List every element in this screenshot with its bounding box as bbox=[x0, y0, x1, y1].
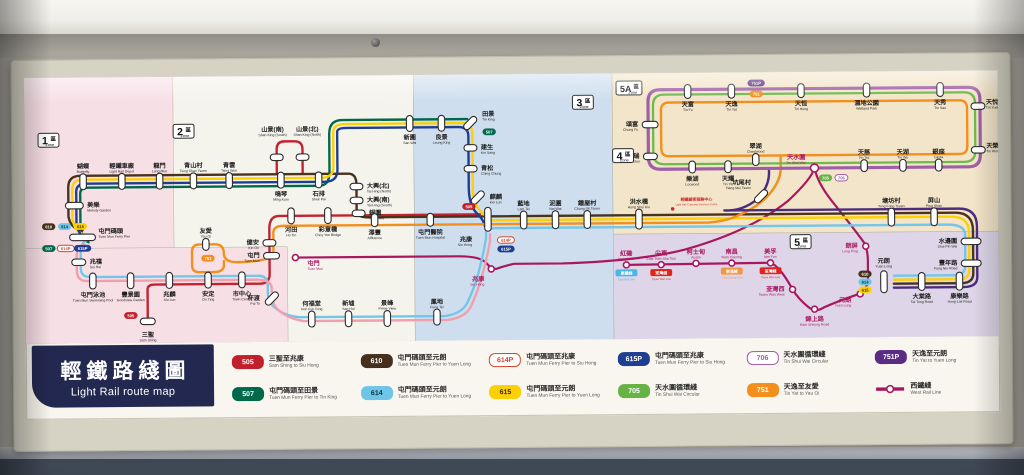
legend-en-615: Tuen Mun Ferry Pier to Yuen Long bbox=[526, 393, 599, 399]
station-tin-tsz bbox=[861, 160, 868, 172]
legend-band: 輕鐵路綫圖 Light Rail route map 505三聖至兆康Sam S… bbox=[26, 337, 1001, 415]
route-badge-507-label: 507 bbox=[45, 246, 53, 251]
station-wetland-park bbox=[863, 83, 870, 97]
legend-en-wrl: West Rail Line bbox=[910, 390, 941, 396]
station-tin-sau-label-en: Tin Sau bbox=[934, 106, 946, 110]
station-affluence-label-en: Affluence bbox=[368, 236, 383, 240]
legend-en-610: Tuen Mun Ferry Pier to Yuen Long bbox=[398, 362, 471, 368]
legend-text-614p: 屯門碼頭至兆康Tuen Mun Ferry Pier to Siu Hong bbox=[526, 353, 596, 367]
route-badge-615P-label: 615P bbox=[501, 247, 511, 252]
legend-text-wrl: 西鐵綫West Rail Line bbox=[910, 382, 941, 396]
legend-badge-505: 505 bbox=[232, 355, 264, 369]
legend-text-615p: 屯門碼頭至兆康Tuen Mun Ferry Pier to Siu Hong bbox=[655, 352, 725, 366]
station-hang-mei-tsuen-label-en: Hang Mei Tsuen bbox=[726, 186, 751, 190]
station-long-ping-wr bbox=[863, 243, 869, 249]
station-yuen-long bbox=[881, 271, 888, 293]
legend-badge-751p: 751P bbox=[875, 350, 907, 364]
legend-item-614: 614屯門碼頭至元朗Tuen Mun Ferry Pier to Yuen Lo… bbox=[361, 378, 484, 409]
legend-item-614p: 614P屯門碼頭至兆康Tuen Mun Ferry Pier to Siu Ho… bbox=[489, 345, 612, 376]
legend-zh-751: 天逸至友愛 bbox=[784, 383, 820, 391]
station-prime-view-label-en: Prime View bbox=[378, 307, 396, 311]
station-ping-shan-label-en: Ping Shan bbox=[926, 204, 942, 208]
legend-badge-615p: 615P bbox=[618, 352, 650, 366]
station-chung-uk-tsuen bbox=[584, 211, 591, 229]
station-tuen-mun-swimming-pool bbox=[90, 273, 97, 289]
station-tin-heng bbox=[798, 84, 805, 98]
route-badge-507-label: 507 bbox=[486, 129, 494, 134]
station-tuen-mun-hospital bbox=[427, 213, 434, 226]
station-tong-fong-tsuen bbox=[888, 208, 895, 226]
station-fung-tei bbox=[434, 309, 441, 325]
station-east-tsim-sha-tsui-wr bbox=[658, 262, 664, 268]
route-badge-751-label: 751 bbox=[204, 256, 212, 261]
station-tin-sau bbox=[937, 83, 944, 97]
station-prime-view bbox=[384, 310, 391, 326]
station-butterfly-label-en: Butterfly bbox=[77, 170, 90, 174]
legend-en-614: Tuen Mun Ferry Pier to Yuen Long bbox=[398, 394, 471, 400]
station-hoh-fuk-tong-label-en: Hoh Fuk Tong bbox=[301, 307, 323, 311]
station-kei-lun-label-en: Kei Lun bbox=[490, 200, 502, 204]
route-badge-610-label: 610 bbox=[862, 272, 870, 277]
legend-text-751: 天逸至友愛Tin Yat to Yau Oi bbox=[784, 383, 820, 397]
station-mei-foo-wr-label-en: Mei Foo bbox=[764, 255, 777, 259]
route-badge-615P-label: 615P bbox=[78, 246, 88, 251]
service-centre-note-zh: 輕鐵顧客服務中心 bbox=[681, 197, 713, 202]
legend-item-507: 507屯門碼頭至田景Tuen Mun Ferry Pier to Tin Kin… bbox=[232, 379, 355, 410]
station-tin-fu-label-en: Tin Fu bbox=[683, 108, 693, 112]
station-kin-on-label-en: Kin On bbox=[248, 246, 259, 250]
route-badge-615-label: 615 bbox=[77, 224, 85, 229]
station-nam-cheong-wr bbox=[729, 260, 735, 266]
station-ping-shan bbox=[931, 208, 938, 226]
station-goodview-garden-label-en: Goodview Garden bbox=[117, 298, 145, 302]
station-tai-tong-road-label-en: Tai Tong Road bbox=[911, 300, 933, 304]
station-tuen-mun-wr bbox=[292, 255, 298, 261]
zone-label-2-zh: 區 bbox=[186, 126, 192, 134]
station-hung-hom-wr bbox=[623, 262, 629, 268]
zone-label-4-zh: 區 bbox=[625, 150, 631, 158]
legend-badge-614: 614 bbox=[361, 386, 393, 400]
station-leung-king-label-en: Leung King bbox=[433, 141, 451, 145]
legend-badge-705: 705 bbox=[618, 384, 650, 398]
station-choy-yee-bridge-label-en: Choy Yee Bridge bbox=[315, 233, 341, 237]
route-map-panel: 蝴蝶Butterfly輕鐵車廠Light Rail Depot龍門Lung Mu… bbox=[10, 52, 1013, 452]
station-locwood bbox=[689, 161, 696, 173]
legend-item-615: 615屯門碼頭至元朗Tuen Mun Ferry Pier to Yuen Lo… bbox=[489, 377, 612, 408]
legend-en-505: Sam Shing to Siu Hong bbox=[269, 363, 319, 369]
station-kin-sang bbox=[464, 145, 477, 152]
station-chung-fu-label-en: Chung Fu bbox=[623, 128, 638, 132]
legend-item-706: 706天水圍循環綫Tin Shui Wai Circular bbox=[746, 343, 869, 374]
station-shui-pin-wai bbox=[961, 238, 981, 245]
legend-en-706: Tin Shui Wai Circular bbox=[784, 359, 829, 365]
station-san-wai bbox=[406, 116, 413, 132]
station-light-rail-depot bbox=[119, 173, 126, 189]
station-tuen-mun bbox=[264, 252, 280, 259]
legend-en-507: Tuen Mun Ferry Pier to Tin King bbox=[269, 395, 337, 401]
route-badge-705-label: 705 bbox=[822, 176, 830, 181]
station-sam-shing bbox=[140, 318, 155, 325]
station-siu-lun-label-en: Siu Lun bbox=[164, 298, 176, 302]
legend-text-615: 屯門碼頭至元朗Tuen Mun Ferry Pier to Yuen Long bbox=[526, 385, 599, 399]
legend-zh-wrl: 西鐵綫 bbox=[910, 382, 941, 390]
station-long-ping-wr-label-en: Long Ping bbox=[842, 249, 858, 253]
station-tsing-wun bbox=[226, 173, 233, 189]
route-badge-751-label: 751 bbox=[753, 92, 761, 97]
photo-scene: 蝴蝶Butterfly輕鐵車廠Light Rail Depot龍門Lung Mu… bbox=[0, 0, 1024, 475]
legend-item-610: 610屯門碼頭至元朗Tuen Mun Ferry Pier to Yuen Lo… bbox=[360, 346, 483, 377]
station-yau-oi bbox=[203, 238, 210, 250]
wr-interchange-tag-1-en: Tsuen Wan Line bbox=[652, 277, 672, 281]
legend-zh-705: 天水圍循環綫 bbox=[655, 384, 700, 392]
wr-interchange-tag-0-zh: 東鐵綫 bbox=[620, 271, 632, 276]
station-tin-yat bbox=[728, 84, 735, 98]
station-hong-lok-road bbox=[956, 272, 963, 290]
service-centre-note-en: Light Rail Customer Services Centre bbox=[676, 202, 718, 206]
route-badge-614P-label: 614P bbox=[501, 238, 511, 243]
legend-text-706: 天水圍循環綫Tin Shui Wai Circular bbox=[783, 351, 828, 365]
station-tai-hing-north-label-en: Tai Hing (North) bbox=[367, 189, 391, 193]
station-ginza-label-en: Ginza bbox=[934, 155, 943, 159]
station-yuen-long-label-en: Yuen Long bbox=[876, 264, 893, 268]
station-tin-fu bbox=[684, 85, 691, 99]
station-fung-nin-road bbox=[961, 260, 981, 267]
legend-badge-615: 615 bbox=[489, 385, 521, 399]
station-san-hui bbox=[345, 311, 352, 327]
station-nai-wai bbox=[552, 211, 559, 229]
legend-en-614p: Tuen Mun Ferry Pier to Siu Hong bbox=[526, 361, 596, 367]
legend-badge-614p: 614P bbox=[489, 353, 521, 367]
legend-badge-507: 507 bbox=[232, 387, 264, 401]
station-tai-hing-south bbox=[350, 197, 363, 204]
route-badge-505-label: 505 bbox=[465, 204, 473, 209]
wr-interchange-tag-3-en: Tsuen Wan Line bbox=[761, 275, 781, 279]
zone-label-4-en: Zone bbox=[619, 158, 629, 162]
station-shui-pin-wai-label-en: Shui Pin Wai bbox=[937, 245, 957, 249]
station-siu-hei bbox=[72, 259, 86, 266]
station-hung-shui-kiu-label-en: Hung Shui Kiu bbox=[628, 205, 650, 209]
station-tin-yat-label-en: Tin Yat bbox=[726, 108, 737, 112]
station-shek-pai-label-en: Shek Pai bbox=[312, 197, 326, 201]
station-tsing-shan-tsuen bbox=[190, 173, 197, 189]
route-badge-614-label: 614 bbox=[61, 224, 69, 229]
station-austin-wr bbox=[693, 260, 699, 266]
light-rail-map: 蝴蝶Butterfly輕鐵車廠Light Rail Depot龍門Lung Mu… bbox=[24, 70, 1000, 344]
wr-interchange-tag-0-en: East Rail Line bbox=[618, 277, 635, 281]
station-tuen-mun-hospital-label-en: Tuen Mun Hospital bbox=[416, 236, 445, 240]
west-rail-line-icon bbox=[875, 383, 905, 395]
station-tin-wu bbox=[900, 159, 907, 171]
zone-label-3-en: Zone bbox=[579, 105, 589, 109]
station-ho-tin bbox=[288, 208, 295, 224]
station-yau-oi-label-en: Yau Oi bbox=[201, 234, 212, 238]
legend-zh-706: 天水圍循環綫 bbox=[783, 351, 828, 359]
legend-text-507: 屯門碼頭至田景Tuen Mun Ferry Pier to Tin King bbox=[269, 387, 337, 401]
station-east-tsim-sha-tsui-wr-label-en: East Tsim Sha Tsui bbox=[647, 257, 676, 261]
station-tuen-mun-wr-label-en: Tuen Mun bbox=[307, 267, 323, 271]
station-tin-tsz-label-en: Tin Tsz bbox=[859, 156, 870, 160]
station-siu-hei-label-en: Siu Hei bbox=[90, 265, 101, 269]
station-ngan-wai bbox=[352, 210, 365, 217]
route-map-board: 蝴蝶Butterfly輕鐵車廠Light Rail Depot龍門Lung Mu… bbox=[24, 70, 1001, 420]
station-tuen-mun-label-en: Tuen Mun bbox=[244, 259, 260, 263]
wr-interchange-tag-2-en: Tung Chung Line bbox=[722, 275, 743, 279]
station-ho-tin-label-en: Ho Tin bbox=[286, 233, 296, 237]
station-leung-king bbox=[438, 115, 445, 131]
station-siu-lun bbox=[166, 272, 173, 288]
station-siu-hong-wr bbox=[488, 266, 494, 272]
station-ming-kum bbox=[278, 172, 285, 188]
station-shek-pai bbox=[315, 172, 322, 188]
station-tin-shui bbox=[643, 153, 657, 160]
station-hoh-fuk-tong bbox=[308, 311, 315, 327]
station-pui-to-label-en: Pui To bbox=[250, 302, 260, 306]
route-badge-505-label: 505 bbox=[127, 313, 135, 318]
legend-item-705: 705天水圍循環綫Tin Shui Wai Circular bbox=[618, 376, 741, 407]
zone-label-3-zh: 區 bbox=[585, 97, 591, 105]
zone-label-1-zh: 區 bbox=[50, 135, 56, 143]
station-tin-shui-wai-wr-label-en: Tin Shui Wai bbox=[786, 161, 806, 165]
station-on-ting bbox=[205, 272, 212, 288]
zone-label-1-en: Zone bbox=[45, 143, 55, 147]
legend-item-751p: 751P天逸至元朗Tin Yat to Yuen Long bbox=[875, 342, 998, 373]
station-san-hui-label-en: San Hui bbox=[342, 307, 355, 311]
service-centre-dot-icon bbox=[671, 207, 675, 211]
station-lung-mun-label-en: Lung Mun bbox=[152, 169, 168, 173]
route-badge-610-label: 610 bbox=[45, 224, 53, 229]
station-nai-wai-label-en: Nai Wai bbox=[549, 207, 561, 211]
zone-label-5a-zh: 區 bbox=[633, 82, 639, 90]
map-title-en: Light Rail route map bbox=[71, 385, 176, 398]
station-kin-sang-label-en: Kin Sang bbox=[481, 151, 495, 155]
station-tin-yuet-label-en: Tin Yuet bbox=[986, 106, 999, 110]
wr-interchange-tag-3-zh: 荃灣綫 bbox=[764, 268, 777, 273]
station-shan-king-south-label-en: Shan King (South) bbox=[258, 133, 286, 137]
station-kin-on bbox=[263, 240, 276, 247]
station-lung-mun bbox=[156, 173, 163, 189]
station-tin-wing bbox=[971, 147, 985, 154]
legend-en-751p: Tin Yat to Yuen Long bbox=[912, 358, 956, 364]
legend-item-505: 505三聖至兆康Sam Shing to Siu Hong bbox=[232, 347, 355, 378]
station-tsing-wun-label-en: Tsing Wun bbox=[221, 169, 237, 173]
route-badge-614-label: 614 bbox=[862, 280, 870, 285]
station-chestwood-label-en: Chestwood bbox=[747, 150, 764, 154]
station-ming-kum-label-en: Ming Kum bbox=[273, 198, 289, 202]
screw-icon bbox=[371, 38, 380, 47]
station-tsuen-wan-west-wr-label-en: Tsuen Wan West bbox=[759, 293, 785, 297]
wr-interchange-tag-2-zh: 東涌綫 bbox=[726, 269, 738, 274]
station-wetland-park-label-en: Wetland Park bbox=[856, 106, 877, 110]
station-shan-king-north-label-en: Shan King (North) bbox=[293, 133, 321, 137]
station-tong-fong-tsuen-label-en: Tong Fong Tsuen bbox=[878, 204, 905, 208]
station-sam-shing-label-en: Sam Shing bbox=[139, 338, 156, 342]
station-lam-tei bbox=[520, 211, 527, 229]
route-legend: 505三聖至兆康Sam Shing to Siu Hong507屯門碼頭至田景T… bbox=[232, 342, 998, 410]
legend-item-615p: 615P屯門碼頭至兆康Tuen Mun Ferry Pier to Siu Ho… bbox=[618, 344, 741, 375]
legend-text-614: 屯門碼頭至元朗Tuen Mun Ferry Pier to Yuen Long bbox=[398, 386, 471, 400]
station-tai-hing-north bbox=[350, 183, 363, 190]
zone-label-5a-en: Zone bbox=[628, 91, 638, 95]
station-melody-garden bbox=[65, 202, 83, 209]
station-melody-garden-label-en: Melody Garden bbox=[87, 208, 111, 212]
zone-label-5-zh: 區 bbox=[803, 236, 809, 244]
station-tin-shui-wai-wr bbox=[810, 164, 818, 172]
station-tai-hing-south-label-en: Tai Hing (South) bbox=[367, 203, 392, 207]
legend-text-751p: 天逸至元朗Tin Yat to Yuen Long bbox=[912, 350, 956, 364]
station-siu-hong bbox=[485, 207, 492, 231]
station-ching-chung bbox=[464, 165, 477, 172]
station-shan-king-north bbox=[296, 154, 309, 161]
station-hong-lok-road-label-en: Hong Lok Road bbox=[948, 300, 972, 304]
station-butterfly bbox=[80, 174, 87, 190]
station-siu-hong-label-en: Siu Hong bbox=[458, 243, 472, 247]
station-hung-hom-wr-label-en: Hung Hom bbox=[618, 257, 635, 261]
map-title-zh: 輕鐵路綫圖 bbox=[55, 354, 190, 385]
station-tuen-mun-swimming-pool-label-en: Tuen Mun Swimming Pool bbox=[73, 298, 114, 302]
legend-text-705: 天水圍循環綫Tin Shui Wai Circular bbox=[655, 384, 700, 398]
route-badge-706-label: 706 bbox=[838, 175, 846, 180]
station-tin-yiu bbox=[725, 161, 732, 173]
station-lam-tei-label-en: Lam Tei bbox=[518, 207, 530, 211]
zone-label-2-en: Zone bbox=[180, 134, 190, 138]
station-tuen-mun-ferry-pier-label-en: Tuen Mun Ferry Pier bbox=[98, 235, 131, 239]
station-shan-king-south bbox=[270, 154, 283, 161]
station-ching-chung-label-en: Ching Chung bbox=[481, 172, 501, 176]
legend-item-751: 751天逸至友愛Tin Yat to Yau Oi bbox=[747, 375, 870, 406]
station-chung-uk-tsuen-label-en: Chung Uk Tsuen bbox=[574, 207, 600, 211]
lower-wall bbox=[0, 459, 1024, 475]
station-yuen-long-wr-label-en: Yuen Long bbox=[835, 303, 852, 307]
route-badge-751P-label: 751P bbox=[751, 81, 761, 86]
legend-en-615p: Tuen Mun Ferry Pier to Siu Hong bbox=[655, 360, 725, 366]
station-goodview-garden bbox=[127, 273, 134, 289]
station-chung-fu bbox=[642, 121, 658, 128]
legend-item-wrl: 西鐵綫West Rail Line bbox=[875, 374, 998, 405]
ceiling-light bbox=[0, 0, 1024, 34]
legend-en-705: Tin Shui Wai Circular bbox=[655, 392, 700, 398]
station-hung-shui-kiu bbox=[636, 209, 643, 229]
station-san-wai-label-en: San Wai bbox=[403, 141, 416, 145]
station-choy-yee-bridge bbox=[325, 208, 332, 224]
station-austin-wr-label-en: Austin bbox=[691, 255, 701, 259]
station-chestwood bbox=[752, 154, 759, 166]
station-on-ting-label-en: On Ting bbox=[202, 298, 214, 302]
station-locwood-label-en: Locwood bbox=[685, 182, 699, 186]
station-mei-foo-wr bbox=[767, 260, 773, 266]
station-tuen-mun-ferry-pier bbox=[70, 234, 96, 241]
station-tsing-shan-tsuen-label-en: Tsing Shan Tsuen bbox=[180, 169, 207, 173]
station-kam-sheung-road-wr-label-en: Kam Sheung Road bbox=[800, 323, 829, 327]
station-tin-yiu-label-en: Tin Yiu bbox=[723, 182, 734, 186]
station-nam-cheong-wr-label-en: Nam Cheong bbox=[721, 255, 742, 259]
station-tin-king-label-en: Tin King bbox=[482, 117, 495, 121]
route-badge-614P-label: 614P bbox=[61, 246, 71, 251]
wr-interchange-tag-1-zh: 荃灣綫 bbox=[654, 270, 667, 275]
station-ginza bbox=[935, 159, 942, 171]
route-badge-615-label: 615 bbox=[862, 288, 870, 293]
station-tsuen-wan-west-wr bbox=[790, 286, 796, 292]
zone-label-5-en: Zone bbox=[797, 244, 807, 248]
legend-en-751: Tin Yat to Yau Oi bbox=[784, 391, 820, 397]
station-siu-hong-wr-label-en: Siu Hong bbox=[470, 283, 484, 287]
station-fung-tei-label-en: Fung Tei bbox=[430, 305, 444, 309]
station-kam-sheung-road-wr bbox=[812, 306, 818, 312]
station-affluence bbox=[371, 214, 378, 227]
station-tin-wing-label-en: Tin Wing bbox=[986, 149, 999, 153]
station-tai-tong-road bbox=[918, 273, 925, 291]
legend-badge-706: 706 bbox=[746, 351, 778, 365]
station-light-rail-depot-label-en: Light Rail Depot bbox=[109, 169, 134, 173]
legend-badge-610: 610 bbox=[360, 354, 392, 368]
station-town-centre bbox=[239, 272, 246, 288]
legend-text-505: 三聖至兆康Sam Shing to Siu Hong bbox=[269, 355, 319, 369]
legend-badge-751: 751 bbox=[747, 383, 779, 397]
station-tin-yuet bbox=[971, 103, 985, 110]
station-tin-heng-label-en: Tin Heng bbox=[794, 107, 808, 111]
legend-text-610: 屯門碼頭至元朗Tuen Mun Ferry Pier to Yuen Long bbox=[397, 354, 470, 368]
station-fung-nin-road-label-en: Fung Nin Road bbox=[934, 266, 957, 270]
station-tin-wu-label-en: Tin Wu bbox=[897, 155, 908, 159]
map-title-block: 輕鐵路綫圖 Light Rail route map bbox=[32, 345, 214, 408]
